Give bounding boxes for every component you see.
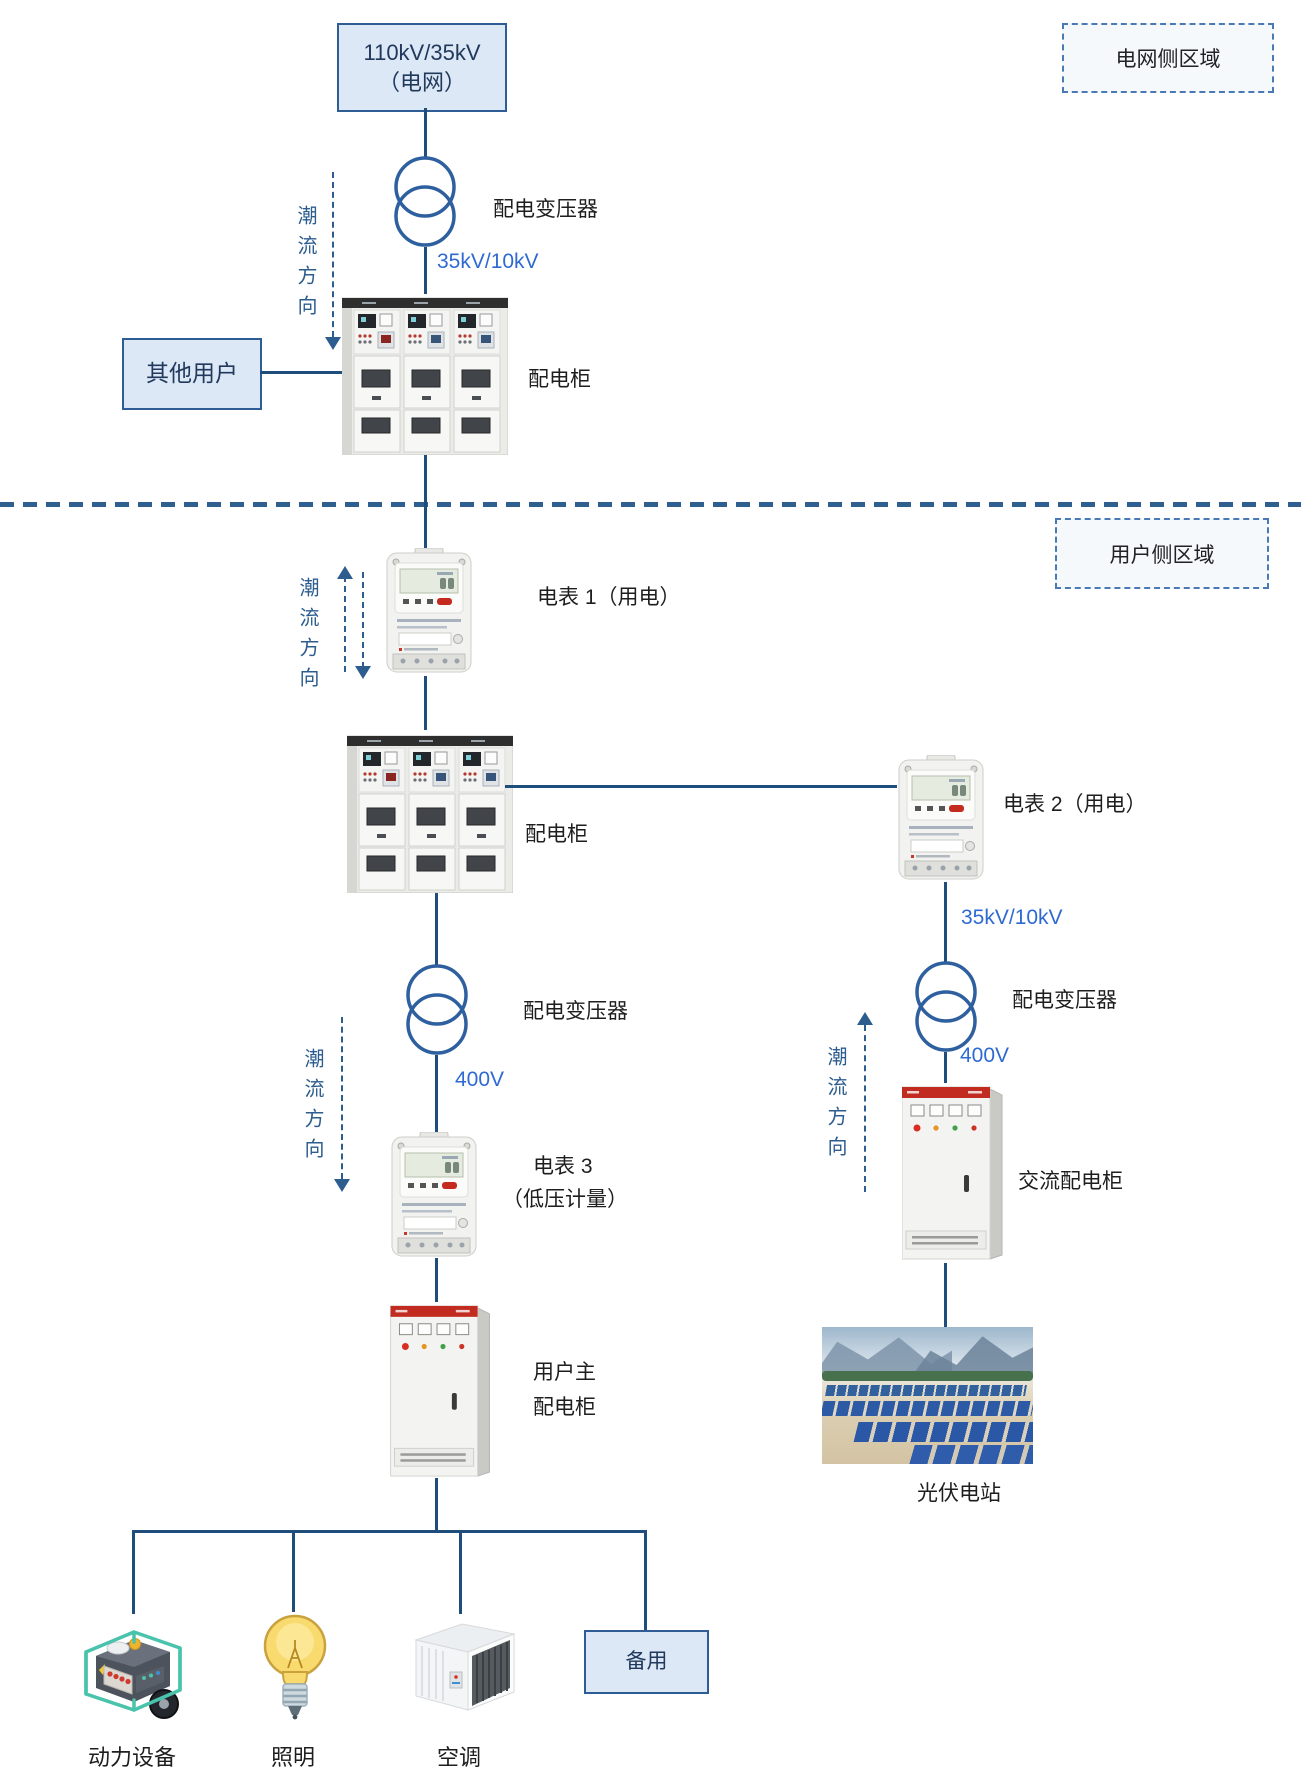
light-bulb-icon xyxy=(258,1610,332,1724)
grid-side-region-label: 电网侧区域 xyxy=(1116,43,1221,73)
electric-meter-icon-2 xyxy=(897,755,985,883)
pv-panel-row xyxy=(854,1422,1033,1442)
flow-arrow-line-load xyxy=(341,1017,343,1179)
flow-direction-label-pv: 潮流方向 xyxy=(824,1046,846,1166)
transformer-icon-pv xyxy=(911,960,981,1054)
branch-line-backup xyxy=(644,1530,647,1630)
pv-panel-row xyxy=(822,1401,1033,1416)
pv-station-image xyxy=(822,1327,1033,1464)
power-line-meter3-to-main-cabinet xyxy=(435,1258,438,1302)
flow-arrow-line-pv xyxy=(864,1025,866,1192)
grid-cabinet-label: 配电柜 xyxy=(528,363,591,393)
power-line-meter2-to-transformer xyxy=(944,882,947,962)
flow-arrow-line-meter1-up xyxy=(344,576,346,672)
power-line-cabinet-to-meter2 xyxy=(505,785,897,788)
power-line-cabinet-to-meter1 xyxy=(424,455,427,548)
one-line-diagram: 电网侧区域 用户侧区域 110kV/35kV （电网） 配电变压器 35kV/1… xyxy=(0,0,1301,1782)
power-line-cabinet-to-transformer-user xyxy=(435,893,438,965)
area-divider-dashed-line xyxy=(0,502,1301,507)
air-conditioning-label: 空调 xyxy=(437,1740,481,1772)
electric-meter-icon-3 xyxy=(390,1132,478,1260)
flow-direction-label-load: 潮流方向 xyxy=(301,1048,323,1168)
main-cabinet-label-line1: 用户主 xyxy=(533,1356,596,1386)
main-cabinet-label-line2: 配电柜 xyxy=(533,1391,596,1421)
flow-arrowhead-down-icon xyxy=(355,666,371,679)
generator-icon xyxy=(72,1612,194,1728)
user-side-region-box: 用户侧区域 xyxy=(1055,518,1269,589)
flow-arrow-line-meter1-down xyxy=(362,572,364,668)
user-lv-voltage-label: 400V xyxy=(455,1068,504,1092)
power-line-ac-cabinet-to-pv xyxy=(944,1263,947,1327)
grid-side-region-box: 电网侧区域 xyxy=(1062,23,1274,93)
ac-cabinet-label: 交流配电柜 xyxy=(1018,1165,1123,1195)
transformer-icon-user xyxy=(402,963,472,1057)
pv-station-label: 光伏电站 xyxy=(917,1477,1001,1507)
power-line-transformer-to-meter3 xyxy=(435,1055,438,1132)
user-side-region-label: 用户侧区域 xyxy=(1110,539,1215,569)
power-line-other-users xyxy=(260,371,342,374)
grid-name-line2: （电网） xyxy=(378,68,466,98)
electric-meter-icon-1 xyxy=(385,548,473,676)
backup-label: 备用 xyxy=(626,1648,668,1676)
transformer-icon-grid xyxy=(390,155,460,249)
flow-arrow-line-grid xyxy=(332,172,334,337)
branch-line-lighting xyxy=(292,1530,295,1612)
user-transformer-label: 配电变压器 xyxy=(523,995,628,1025)
power-line-transformer-to-cabinet xyxy=(424,247,427,294)
main-distribution-cabinet-icon xyxy=(390,1302,492,1480)
power-line-main-cabinet-to-bus xyxy=(435,1478,438,1533)
ac-distribution-cabinet-icon xyxy=(902,1083,1004,1263)
switchgear-cabinet-icon-grid xyxy=(342,292,508,455)
pv-branch-lv-voltage-label: 400V xyxy=(960,1044,1009,1068)
flow-arrowhead-down-icon xyxy=(325,337,341,350)
power-equipment-label: 动力设备 xyxy=(88,1740,176,1772)
meter1-label: 电表 1（用电） xyxy=(537,581,681,611)
air-conditioner-icon xyxy=(404,1614,524,1714)
power-line-transformer-to-ac-cabinet xyxy=(944,1052,947,1083)
flow-arrowhead-down-icon xyxy=(334,1179,350,1192)
meter2-label: 电表 2（用电） xyxy=(1003,788,1147,818)
load-bus-line xyxy=(132,1530,647,1533)
power-line-meter1-to-cabinet xyxy=(424,676,427,730)
pv-panel-row xyxy=(909,1445,1033,1464)
pv-panel-row xyxy=(825,1385,1027,1396)
branch-line-power-equipment xyxy=(132,1530,135,1614)
other-users-box: 其他用户 xyxy=(122,338,262,410)
flow-arrowhead-up-icon xyxy=(337,566,353,579)
backup-box: 备用 xyxy=(584,1630,709,1694)
flow-direction-label-grid: 潮流方向 xyxy=(294,205,316,325)
user-cabinet-label: 配电柜 xyxy=(525,818,588,848)
pv-mountains xyxy=(911,1329,1033,1377)
branch-line-air-conditioning xyxy=(459,1530,462,1614)
pv-branch-hv-voltage-label: 35kV/10kV xyxy=(961,906,1063,930)
pv-treeline xyxy=(822,1371,1033,1381)
grid-voltage-line1: 110kV/35kV xyxy=(363,38,480,68)
meter3-label-line2: （低压计量） xyxy=(502,1183,628,1213)
lighting-label: 照明 xyxy=(271,1740,315,1772)
other-users-label: 其他用户 xyxy=(146,358,238,389)
switchgear-cabinet-icon-user xyxy=(347,730,513,893)
flow-direction-label-meter1: 潮流方向 xyxy=(296,577,318,697)
power-line-grid-to-transformer xyxy=(424,108,427,158)
grid-source-box: 110kV/35kV （电网） xyxy=(337,23,507,112)
meter3-label-line1: 电表 3 xyxy=(533,1150,593,1180)
grid-voltage-label: 35kV/10kV xyxy=(437,250,539,274)
pv-transformer-label: 配电变压器 xyxy=(1012,984,1117,1014)
grid-transformer-label: 配电变压器 xyxy=(493,193,598,223)
flow-arrowhead-up-icon xyxy=(857,1012,873,1025)
